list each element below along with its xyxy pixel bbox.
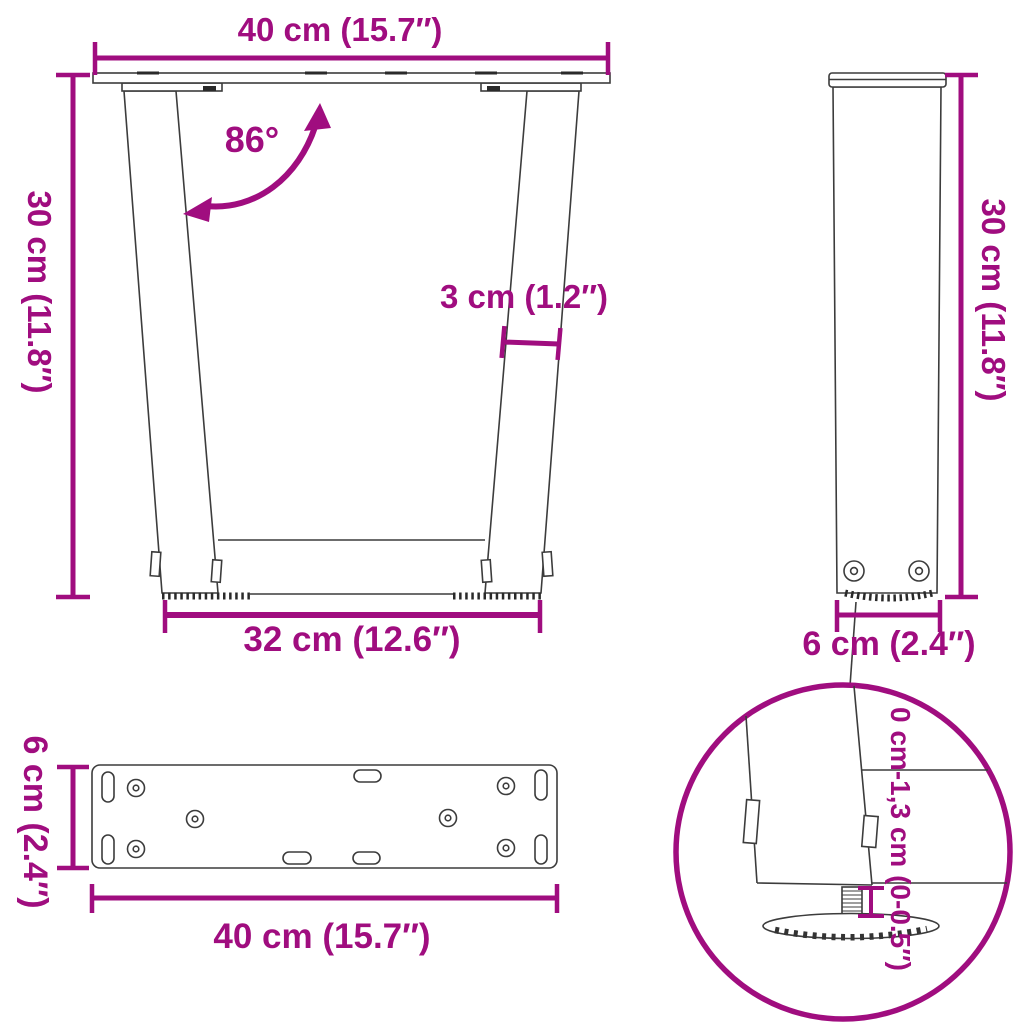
leg-thickness-label: 3 cm (1.2″) xyxy=(440,278,608,315)
angle-label: 86° xyxy=(225,119,279,160)
right-leg-outer-tab xyxy=(542,552,553,577)
plate-depth-label: 6 cm (2.4″) xyxy=(16,735,54,908)
side-height-label: 30 cm (11.8″) xyxy=(975,199,1012,402)
foot-adjustment-label: 0 cm-1,3 cm (0-0.5″) xyxy=(885,707,916,971)
right-leg-inner-tab xyxy=(481,560,492,583)
foot-detail-view: 0 cm-1,3 cm (0-0.5″) xyxy=(676,685,1010,1019)
left-leg-outer-tab xyxy=(150,552,161,577)
plate-width-label: 40 cm (15.7″) xyxy=(213,917,430,956)
detail-adjustment-screw xyxy=(842,887,862,917)
front-height-label: 30 cm (11.8″) xyxy=(21,191,58,394)
detail-left-tab xyxy=(743,800,759,844)
side-leg-body xyxy=(833,87,941,593)
front-top-plate xyxy=(93,73,610,83)
front-left-bracket-mark xyxy=(203,86,216,91)
front-top-width-label: 40 cm (15.7″) xyxy=(238,11,443,48)
front-bottom-width-label: 32 cm (12.6″) xyxy=(243,620,460,659)
front-right-bracket-mark xyxy=(487,86,500,91)
detail-right-tab xyxy=(862,815,878,847)
mounting-plate xyxy=(92,765,557,868)
plate-top-view xyxy=(92,765,557,868)
side-depth-label: 6 cm (2.4″) xyxy=(802,625,975,663)
left-leg-inner-tab xyxy=(211,560,222,583)
detail-circle xyxy=(676,685,1010,1019)
dimension-diagram: 40 cm (15.7″) 30 cm (11.8″) 32 cm (12.6″… xyxy=(0,0,1024,1024)
